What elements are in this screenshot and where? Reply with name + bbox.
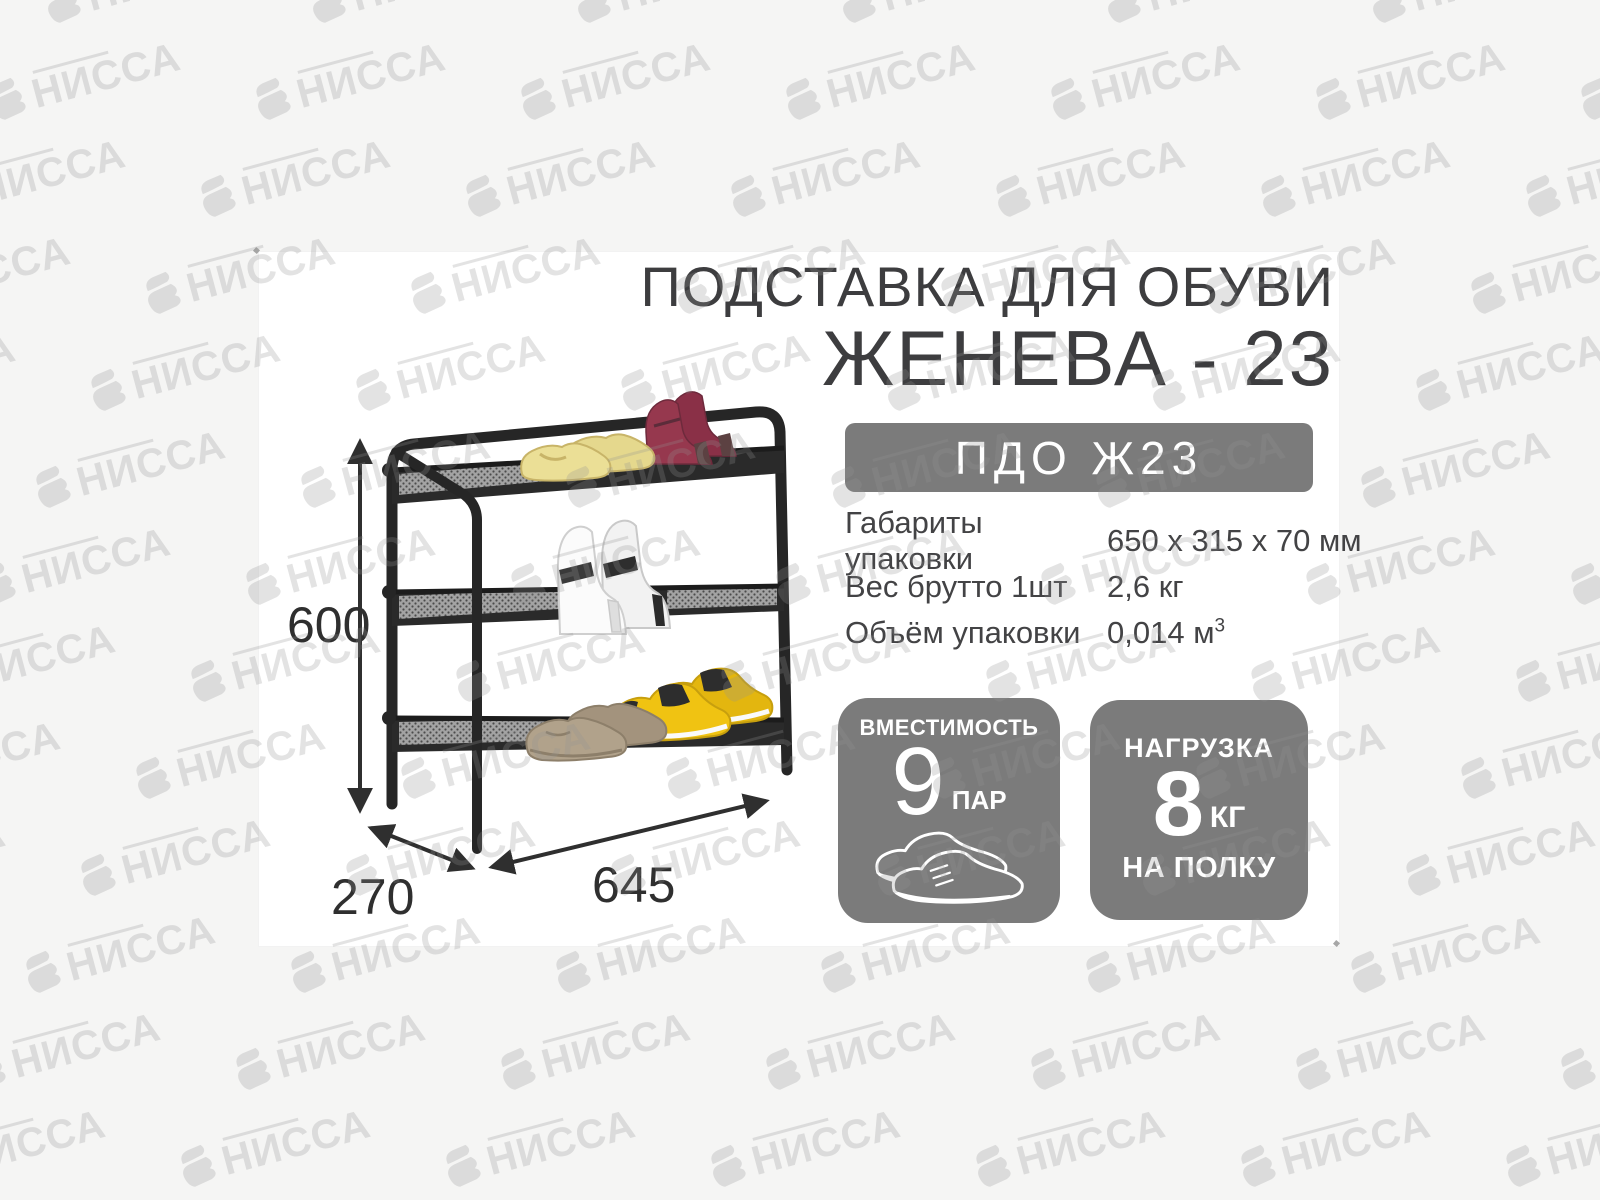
nissa-watermark-text: НИССА	[238, 136, 394, 209]
nissa-watermark-tagline	[242, 148, 318, 171]
spec-row-package-volume: Объём упаковки 0,014 м3	[845, 610, 1362, 656]
nissa-watermark: НИССА	[0, 129, 129, 221]
nissa-watermark-tagline	[507, 148, 583, 171]
nissa-logo-icon	[0, 73, 32, 124]
nissa-logo-icon	[1308, 73, 1358, 124]
nissa-logo-icon	[1498, 1140, 1548, 1191]
nissa-watermark-body: НИССА	[612, 0, 769, 15]
nissa-watermark-text: НИССА	[613, 0, 769, 15]
nissa-watermark-body: НИССА	[0, 712, 64, 791]
nissa-watermark: НИССА	[1288, 1002, 1489, 1094]
nissa-watermark-tagline	[1357, 51, 1433, 74]
nissa-watermark-body: НИССА	[0, 1100, 109, 1179]
nissa-logo-icon	[1343, 946, 1393, 997]
nissa-logo-icon	[183, 655, 233, 706]
nissa-watermark-text: НИССА	[483, 1106, 639, 1179]
nissa-watermark: НИССА	[1178, 1196, 1379, 1200]
nissa-watermark-text: НИССА	[0, 233, 74, 306]
nissa-watermark-body: НИССА	[1407, 0, 1564, 15]
nissa-watermark-tagline	[827, 51, 903, 74]
nissa-watermark-tagline	[177, 730, 253, 753]
nissa-logo-icon	[1288, 1043, 1338, 1094]
nissa-watermark: НИССА	[18, 905, 219, 997]
nissa-logo-icon	[1043, 73, 1093, 124]
nissa-watermark-tagline	[807, 1021, 883, 1044]
nissa-watermark: НИССА	[1343, 905, 1544, 997]
capacity-number: 9	[891, 741, 944, 824]
nissa-watermark: НИССА	[383, 1196, 584, 1200]
nissa-logo-icon	[1078, 946, 1128, 997]
nissa-logo-icon	[0, 1043, 12, 1094]
load-subtitle: НА ПОЛКУ	[1090, 852, 1308, 885]
nissa-watermark: НИССА	[1463, 226, 1600, 318]
product-category-title: ПОДСТАВКА ДЛЯ ОБУВИ	[640, 258, 1334, 317]
nissa-watermark: НИССА	[0, 1099, 109, 1191]
nissa-watermark-body: НИССА	[877, 0, 1034, 15]
product-name-title: ЖЕНЕВА - 23	[640, 319, 1334, 397]
nissa-logo-icon	[38, 0, 88, 27]
nissa-watermark: НИССА	[1563, 517, 1600, 609]
nissa-watermark-text: НИССА	[1143, 0, 1299, 15]
nissa-watermark-body: НИССА	[747, 1100, 904, 1179]
nissa-watermark: НИССА	[1443, 1196, 1600, 1200]
nissa-watermark-tagline	[562, 51, 638, 74]
nissa-logo-icon	[758, 1043, 808, 1094]
nissa-watermark-body: НИССА	[1032, 130, 1189, 209]
nissa-watermark-body: НИССА	[1277, 1100, 1434, 1179]
nissa-watermark-tagline	[22, 536, 98, 559]
capacity-value: 9 ПАР	[838, 741, 1060, 824]
nissa-logo-icon	[1233, 1140, 1283, 1191]
nissa-watermark-tagline	[0, 1118, 34, 1141]
nissa-watermark-body: НИССА	[1497, 712, 1600, 791]
nissa-watermark-tagline	[32, 51, 108, 74]
nissa-watermark: НИССА	[228, 1002, 429, 1094]
nissa-watermark-text: НИССА	[348, 0, 504, 15]
nissa-logo-icon	[968, 1140, 1018, 1191]
nissa-watermark: НИССА	[1453, 711, 1600, 803]
nissa-watermark: НИССА	[648, 1196, 849, 1200]
nissa-watermark-text: НИССА	[558, 39, 714, 112]
nissa-logo-icon	[1463, 267, 1513, 318]
nissa-watermark-text: НИССА	[118, 815, 274, 888]
nissa-logo-icon	[1363, 0, 1413, 27]
load-number: 8	[1153, 764, 1204, 845]
height-dimension-label: 600	[287, 600, 370, 650]
spec-value: 650 x 315 x 70 мм	[1107, 523, 1362, 559]
nissa-watermark-body: НИССА	[1332, 1003, 1489, 1082]
nissa-watermark: НИССА	[38, 0, 239, 27]
nissa-watermark-text: НИССА	[1088, 39, 1244, 112]
nissa-watermark: НИССА	[1043, 32, 1244, 124]
nissa-watermark: НИССА	[0, 32, 184, 124]
nissa-watermark-tagline	[1402, 439, 1478, 462]
nissa-watermark: НИССА	[778, 32, 979, 124]
load-box: НАГРУЗКА 8 КГ НА ПОЛКУ	[1090, 700, 1308, 920]
nissa-logo-icon	[128, 752, 178, 803]
width-dimension-label: 645	[592, 860, 675, 910]
nissa-watermark-text: НИССА	[803, 1009, 959, 1082]
nissa-watermark-text: НИССА	[8, 1009, 164, 1082]
model-code-badge: ПДО Ж23	[845, 423, 1313, 492]
nissa-logo-icon	[248, 73, 298, 124]
nissa-watermark-text: НИССА	[748, 1106, 904, 1179]
nissa-watermark-tagline	[0, 633, 44, 656]
nissa-watermark: НИССА	[0, 614, 119, 706]
nissa-watermark-body: НИССА	[0, 130, 129, 209]
spec-value-number: 0,014 м	[1107, 615, 1215, 650]
depth-dimension-label: 270	[331, 872, 414, 922]
nissa-watermark-text: НИССА	[1498, 718, 1600, 791]
nissa-watermark: НИССА	[193, 129, 394, 221]
nissa-watermark-body: НИССА	[292, 33, 449, 112]
shoes-burgundy-heels	[646, 392, 736, 464]
spec-row-gross-weight: Вес брутто 1шт 2,6 кг	[845, 564, 1362, 610]
nissa-watermark: НИССА	[73, 808, 274, 900]
nissa-watermark: НИССА	[1498, 1099, 1600, 1191]
nissa-logo-icon	[83, 364, 133, 415]
nissa-watermark: НИССА	[723, 129, 924, 221]
nissa-watermark-text: НИССА	[0, 718, 64, 791]
nissa-watermark-body: НИССА	[1142, 0, 1299, 15]
nissa-watermark-text: НИССА	[0, 136, 129, 209]
nissa-watermark-text: НИССА	[768, 136, 924, 209]
nissa-watermark-tagline	[222, 1118, 298, 1141]
nissa-logo-icon	[1453, 752, 1503, 803]
nissa-watermark-tagline	[1017, 1118, 1093, 1141]
nissa-watermark-body: НИССА	[502, 130, 659, 209]
nissa-watermark-text: НИССА	[18, 524, 174, 597]
nissa-watermark-body: НИССА	[482, 1100, 639, 1179]
nissa-watermark-body: НИССА	[0, 615, 119, 694]
nissa-watermark-body: НИССА	[17, 518, 174, 597]
nissa-watermark-body: НИССА	[272, 1003, 429, 1082]
nissa-watermark-body: НИССА	[62, 906, 219, 985]
nissa-logo-icon	[138, 267, 188, 318]
nissa-watermark-text: НИССА	[1033, 136, 1189, 209]
nissa-watermark-body: НИССА	[1012, 1100, 1169, 1179]
nissa-watermark-text: НИССА	[63, 912, 219, 985]
nissa-logo-icon	[513, 73, 563, 124]
nissa-watermark-body: НИССА	[1507, 227, 1600, 306]
nissa-watermark-text: НИССА	[0, 330, 19, 403]
nissa-logo-icon	[813, 946, 863, 997]
dimension-arrows	[360, 442, 766, 868]
nissa-logo-icon	[1398, 849, 1448, 900]
nissa-watermark: НИССА	[303, 0, 504, 27]
nissa-watermark: НИССА	[248, 32, 449, 124]
nissa-watermark-text: НИССА	[1553, 621, 1600, 694]
nissa-logo-icon	[568, 0, 618, 27]
nissa-logo-icon	[1253, 170, 1303, 221]
nissa-watermark-text: НИССА	[1068, 1009, 1224, 1082]
nissa-watermark: НИССА	[1098, 0, 1299, 27]
nissa-watermark-text: НИССА	[823, 39, 979, 112]
nissa-watermark-tagline	[1502, 730, 1578, 753]
nissa-logo-icon	[1098, 0, 1148, 27]
nissa-watermark: НИССА	[913, 1196, 1114, 1200]
nissa-logo-icon	[778, 73, 828, 124]
nissa-watermark-text: НИССА	[538, 1009, 694, 1082]
nissa-logo-icon	[0, 558, 22, 609]
nissa-watermark-tagline	[752, 1118, 828, 1141]
nissa-watermark-tagline	[1037, 148, 1113, 171]
nissa-logo-icon	[193, 170, 243, 221]
nissa-watermark-body: НИССА	[1387, 906, 1544, 985]
nissa-watermark: НИССА	[118, 1196, 319, 1200]
nissa-logo-icon	[723, 170, 773, 221]
nissa-watermark-text: НИССА	[0, 1106, 109, 1179]
nissa-watermark-body: НИССА	[1352, 33, 1509, 112]
spec-value: 0,014 м3	[1107, 615, 1225, 651]
nissa-watermark: НИССА	[968, 1099, 1169, 1191]
nissa-watermark: НИССА	[833, 0, 1034, 27]
nissa-watermark-text: НИССА	[28, 39, 184, 112]
nissa-watermark: НИССА	[493, 1002, 694, 1094]
nissa-watermark: НИССА	[0, 226, 74, 318]
nissa-watermark-text: НИССА	[1563, 136, 1600, 209]
nissa-watermark: НИССА	[0, 323, 19, 415]
nissa-watermark-text: НИССА	[83, 0, 239, 15]
nissa-watermark: НИССА	[1553, 1002, 1600, 1094]
nissa-watermark-tagline	[487, 1118, 563, 1141]
nissa-watermark: НИССА	[458, 129, 659, 221]
nissa-watermark-body: НИССА	[1067, 1003, 1224, 1082]
nissa-watermark-text: НИССА	[218, 1106, 374, 1179]
nissa-watermark-body: НИССА	[767, 130, 924, 209]
nissa-watermark: НИССА	[568, 0, 769, 27]
nissa-logo-icon	[73, 849, 123, 900]
nissa-watermark: НИССА	[28, 420, 229, 512]
nissa-logo-icon	[303, 0, 353, 27]
nissa-logo-icon	[833, 0, 883, 27]
shoes-pair-icon	[838, 827, 1060, 916]
nissa-watermark: НИССА	[1253, 129, 1454, 221]
nissa-watermark: НИССА	[0, 808, 9, 900]
nissa-watermark-body: НИССА	[1542, 1100, 1600, 1179]
nissa-logo-icon	[28, 461, 78, 512]
nissa-watermark-text: НИССА	[1298, 136, 1454, 209]
nissa-watermark-body: НИССА	[1297, 130, 1454, 209]
nissa-logo-icon	[18, 946, 68, 997]
capacity-unit: ПАР	[952, 785, 1007, 816]
nissa-watermark-text: НИССА	[1278, 1106, 1434, 1179]
specs-table: Габариты упаковки 650 x 315 x 70 мм Вес …	[845, 518, 1362, 656]
nissa-watermark: НИССА	[1308, 32, 1509, 124]
nissa-watermark-body: НИССА	[1552, 615, 1600, 694]
page-title: ПОДСТАВКА ДЛЯ ОБУВИ ЖЕНЕВА - 23	[640, 258, 1334, 397]
product-sheet: ПОДСТАВКА ДЛЯ ОБУВИ ЖЕНЕВА - 23 ПДО Ж23 …	[0, 0, 1600, 1200]
nissa-watermark-tagline	[1302, 148, 1378, 171]
nissa-watermark: НИССА	[0, 1196, 54, 1200]
nissa-watermark-tagline	[77, 439, 153, 462]
spec-label: Вес брутто 1шт	[845, 569, 1107, 605]
nissa-watermark-tagline	[1547, 1118, 1600, 1141]
nissa-watermark-tagline	[1512, 245, 1588, 268]
nissa-watermark: НИССА	[1233, 1099, 1434, 1191]
nissa-watermark: НИССА	[1023, 1002, 1224, 1094]
model-code-text: ПДО Ж23	[955, 431, 1203, 485]
nissa-watermark: НИССА	[173, 1099, 374, 1191]
nissa-watermark-body: НИССА	[0, 809, 9, 888]
nissa-watermark-body: НИССА	[1342, 518, 1499, 597]
nissa-logo-icon	[173, 1140, 223, 1191]
nissa-watermark-tagline	[1457, 342, 1533, 365]
nissa-watermark: НИССА	[703, 1099, 904, 1191]
nissa-logo-icon	[988, 170, 1038, 221]
nissa-watermark-text: НИССА	[1453, 330, 1600, 403]
depth-arrow	[371, 828, 472, 868]
load-unit: КГ	[1210, 801, 1245, 835]
capacity-title: ВМЕСТИМОСТЬ	[838, 715, 1060, 741]
nissa-watermark-text: НИССА	[73, 427, 229, 500]
nissa-watermark-text: НИССА	[1543, 1106, 1600, 1179]
nissa-watermark-text: НИССА	[1013, 1106, 1169, 1179]
nissa-logo-icon	[703, 1140, 753, 1191]
nissa-watermark-tagline	[772, 148, 848, 171]
nissa-logo-icon	[1553, 1043, 1600, 1094]
nissa-watermark-text: НИССА	[1443, 815, 1599, 888]
nissa-watermark-body: НИССА	[72, 421, 229, 500]
capacity-box: ВМЕСТИМОСТЬ 9 ПАР	[838, 698, 1060, 923]
nissa-watermark-tagline	[67, 924, 143, 947]
nissa-watermark-tagline	[1392, 924, 1468, 947]
nissa-watermark-body: НИССА	[1452, 324, 1600, 403]
nissa-watermark-tagline	[1092, 51, 1168, 74]
nissa-watermark-text: НИССА	[1388, 912, 1544, 985]
nissa-watermark-body: НИССА	[237, 130, 394, 209]
nissa-watermark-body: НИССА	[557, 33, 714, 112]
nissa-logo-icon	[1353, 461, 1403, 512]
nissa-watermark-text: НИССА	[503, 136, 659, 209]
nissa-watermark-body: НИССА	[0, 227, 74, 306]
nissa-watermark-text: НИССА	[273, 1009, 429, 1082]
nissa-watermark-text: НИССА	[0, 815, 9, 888]
nissa-watermark-text: НИССА	[1398, 427, 1554, 500]
nissa-watermark-body: НИССА	[822, 33, 979, 112]
nissa-watermark-body: НИССА	[217, 1100, 374, 1179]
nissa-watermark: НИССА	[438, 1099, 639, 1191]
nissa-logo-icon	[458, 170, 508, 221]
nissa-watermark-text: НИССА	[878, 0, 1034, 15]
nissa-watermark: НИССА	[1363, 0, 1564, 27]
nissa-watermark-body: НИССА	[1087, 33, 1244, 112]
nissa-watermark-text: НИССА	[1333, 1009, 1489, 1082]
spec-label: Объём упаковки	[845, 615, 1107, 651]
nissa-watermark-text: НИССА	[293, 39, 449, 112]
load-value: 8 КГ	[1090, 764, 1308, 845]
nissa-watermark-text: НИССА	[1343, 524, 1499, 597]
nissa-logo-icon	[1573, 73, 1600, 124]
rack-front-post	[396, 452, 477, 849]
shoes-taupe-derbies	[526, 704, 666, 761]
nissa-watermark-body: НИССА	[1442, 809, 1599, 888]
nissa-watermark-tagline	[542, 1021, 618, 1044]
nissa-watermark-tagline	[297, 51, 373, 74]
nissa-watermark-text: НИССА	[0, 621, 119, 694]
nissa-watermark: НИССА	[1508, 614, 1600, 706]
nissa-watermark: НИССА	[0, 711, 64, 803]
nissa-watermark-body: НИССА	[0, 324, 19, 403]
nissa-watermark-tagline	[1072, 1021, 1148, 1044]
nissa-watermark: НИССА	[513, 32, 714, 124]
nissa-logo-icon	[1408, 364, 1458, 415]
nissa-watermark-text: НИССА	[1408, 0, 1564, 15]
nissa-watermark-body: НИССА	[7, 1003, 164, 1082]
nissa-watermark: НИССА	[0, 517, 174, 609]
nissa-logo-icon	[1518, 170, 1568, 221]
nissa-watermark: НИССА	[1353, 420, 1554, 512]
nissa-watermark-tagline	[1567, 148, 1600, 171]
nissa-watermark-tagline	[1282, 1118, 1358, 1141]
nissa-logo-icon	[228, 1043, 278, 1094]
spec-value: 2,6 кг	[1107, 569, 1184, 605]
spec-value-superscript: 3	[1215, 616, 1226, 637]
nissa-watermark-text: НИССА	[1508, 233, 1600, 306]
nissa-watermark: НИССА	[988, 129, 1189, 221]
nissa-watermark-tagline	[0, 148, 54, 171]
spec-label: Габариты упаковки	[845, 505, 1107, 577]
nissa-watermark-tagline	[122, 827, 198, 850]
nissa-watermark-tagline	[1557, 633, 1600, 656]
nissa-watermark-text: НИССА	[1353, 39, 1509, 112]
nissa-watermark-body: НИССА	[1397, 421, 1554, 500]
nissa-watermark-body: НИССА	[802, 1003, 959, 1082]
nissa-watermark: НИССА	[758, 1002, 959, 1094]
nissa-watermark-tagline	[187, 245, 263, 268]
nissa-watermark-body: НИССА	[27, 33, 184, 112]
nissa-watermark-tagline	[12, 1021, 88, 1044]
nissa-watermark-body: НИССА	[117, 809, 274, 888]
nissa-logo-icon	[493, 1043, 543, 1094]
nissa-watermark: НИССА	[0, 1002, 164, 1094]
nissa-watermark-body: НИССА	[1562, 130, 1600, 209]
shoes-white-heels	[558, 521, 670, 634]
nissa-watermark-tagline	[277, 1021, 353, 1044]
nissa-watermark: НИССА	[83, 323, 284, 415]
nissa-watermark: НИССА	[1518, 129, 1600, 221]
nissa-watermark: НИССА	[1408, 323, 1600, 415]
nissa-watermark-body: НИССА	[537, 1003, 694, 1082]
nissa-watermark-body: НИССА	[347, 0, 504, 15]
nissa-watermark: НИССА	[1573, 32, 1600, 124]
nissa-logo-icon	[438, 1140, 488, 1191]
nissa-logo-icon	[1508, 655, 1558, 706]
nissa-watermark: НИССА	[1398, 808, 1599, 900]
nissa-logo-icon	[1563, 558, 1600, 609]
nissa-watermark-tagline	[1447, 827, 1523, 850]
spec-row-package-size: Габариты упаковки 650 x 315 x 70 мм	[845, 518, 1362, 564]
nissa-watermark-body: НИССА	[82, 0, 239, 15]
nissa-watermark-tagline	[132, 342, 208, 365]
nissa-watermark-tagline	[1337, 1021, 1413, 1044]
nissa-logo-icon	[1023, 1043, 1073, 1094]
